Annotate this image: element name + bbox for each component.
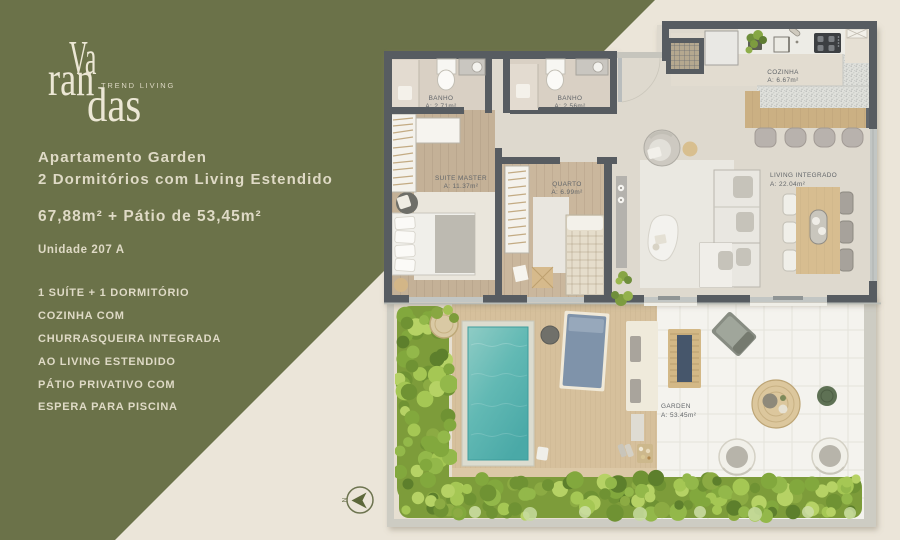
- svg-text:A: 11.37m²: A: 11.37m²: [444, 183, 479, 190]
- svg-text:A: 53.45m²: A: 53.45m²: [661, 412, 696, 419]
- svg-text:A: 6.67m²: A: 6.67m²: [767, 77, 798, 84]
- svg-text:GARDEN: GARDEN: [661, 403, 691, 410]
- svg-text:LIVING INTEGRADO: LIVING INTEGRADO: [770, 172, 837, 179]
- svg-text:A: 22.04m²: A: 22.04m²: [770, 181, 805, 188]
- svg-text:N: N: [342, 497, 349, 502]
- svg-text:SUITE MASTER: SUITE MASTER: [435, 175, 487, 182]
- svg-text:BANHO: BANHO: [429, 95, 454, 102]
- svg-text:BANHO: BANHO: [558, 95, 583, 102]
- svg-text:QUARTO: QUARTO: [552, 181, 582, 188]
- svg-text:A: 6.99m²: A: 6.99m²: [551, 189, 582, 196]
- svg-text:A: 2.56m²: A: 2.56m²: [554, 103, 585, 110]
- svg-text:A: 2.71m²: A: 2.71m²: [425, 103, 456, 110]
- svg-text:COZINHA: COZINHA: [767, 69, 799, 76]
